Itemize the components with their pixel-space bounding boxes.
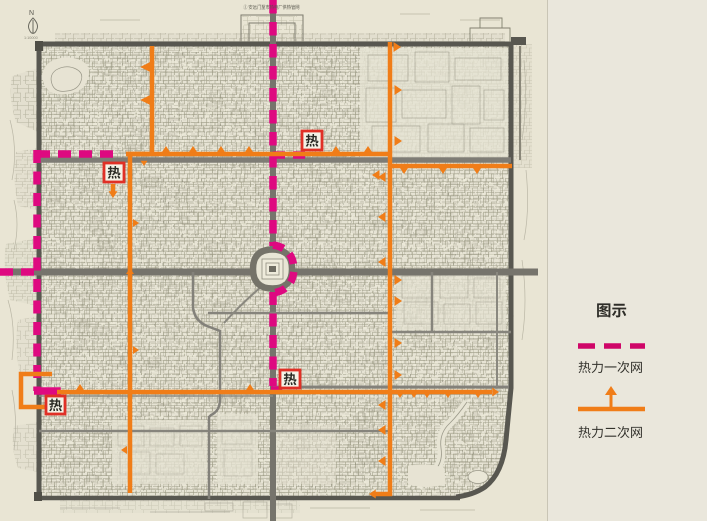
svg-text:1:10000: 1:10000	[24, 36, 38, 40]
svg-text:N: N	[29, 10, 34, 17]
